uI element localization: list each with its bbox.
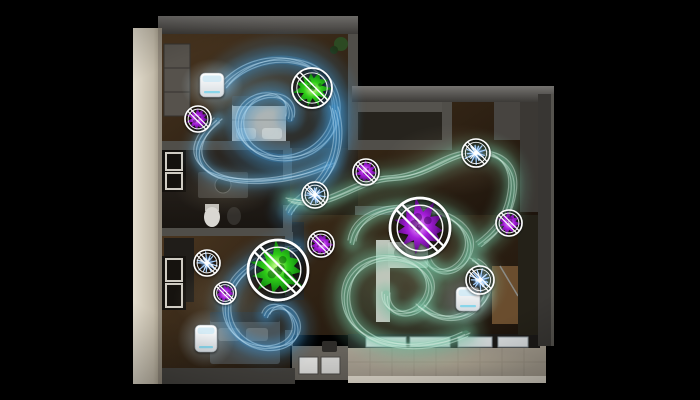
apartment-airflow-visualization <box>0 0 700 400</box>
vignette-overlay <box>0 0 700 400</box>
scene-canvas <box>0 0 700 400</box>
